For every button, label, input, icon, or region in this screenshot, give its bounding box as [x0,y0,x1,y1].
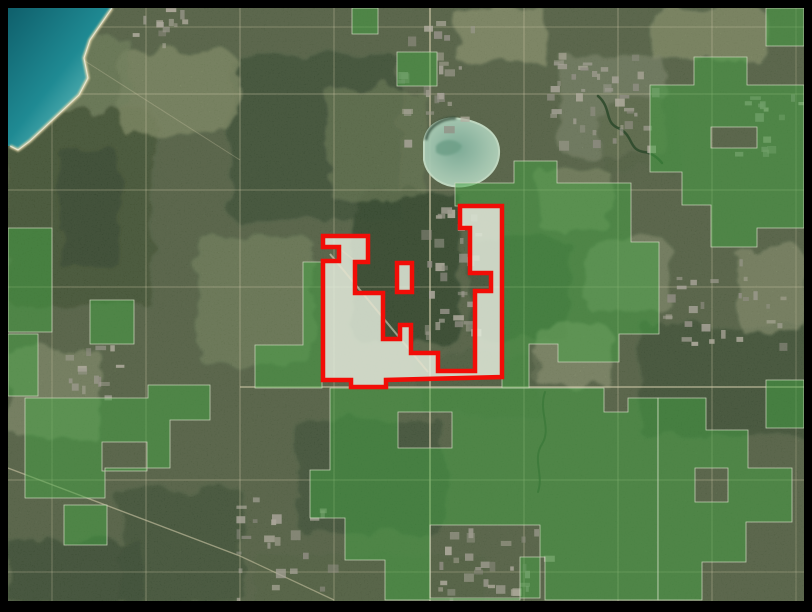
map-window [0,0,812,612]
aerial-parcel-map[interactable] [0,0,812,612]
state-land-parcel[interactable] [352,8,378,34]
state-land-parcel[interactable] [8,228,52,332]
state-land-parcel[interactable] [64,505,107,545]
state-land-parcel[interactable] [8,334,38,396]
state-land-parcel[interactable] [766,380,804,428]
state-land-parcel[interactable] [397,52,437,86]
state-land-parcel[interactable] [90,300,134,344]
inland-lake [424,118,499,186]
state-land-parcel[interactable] [766,8,804,46]
